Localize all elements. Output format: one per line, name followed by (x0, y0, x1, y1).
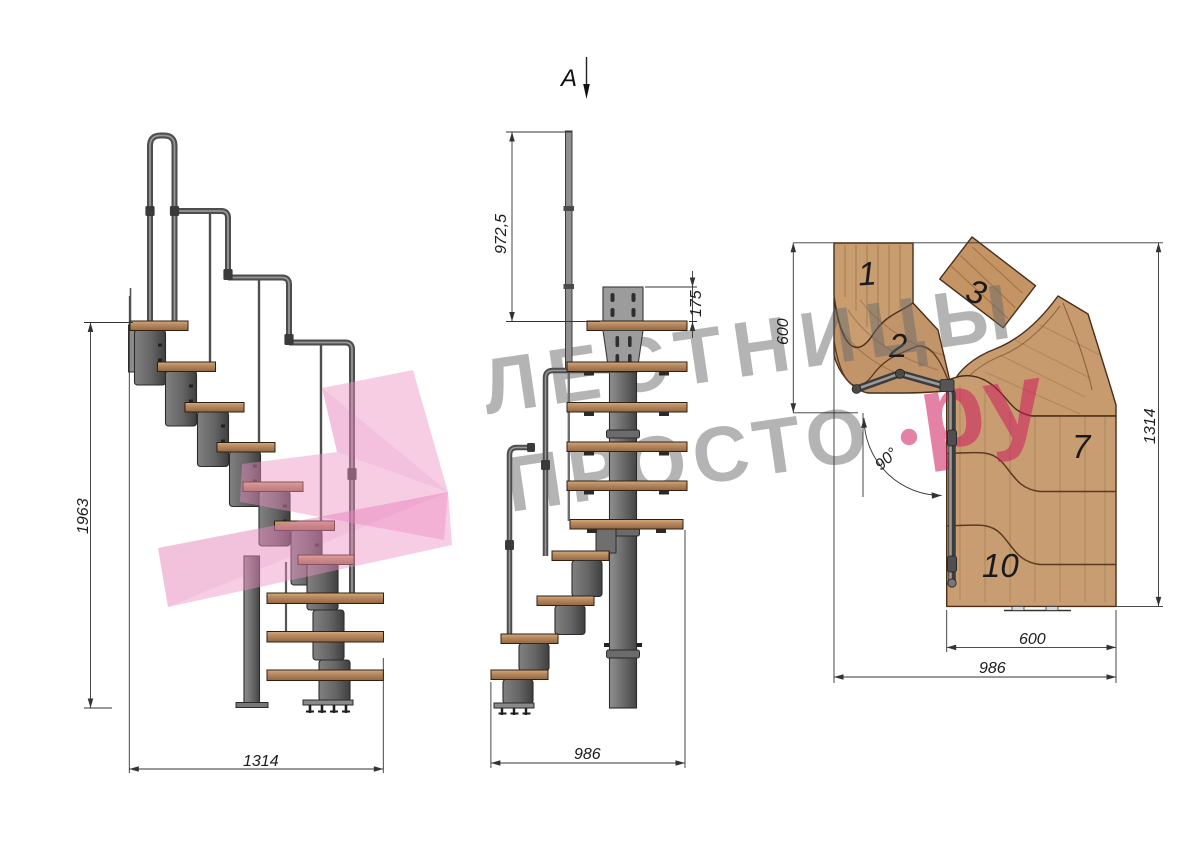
svg-text:1314: 1314 (1142, 408, 1159, 444)
svg-text:986: 986 (574, 746, 601, 763)
svg-text:600: 600 (1019, 631, 1046, 648)
svg-text:10: 10 (982, 547, 1019, 584)
svg-text:972,5: 972,5 (493, 214, 510, 254)
svg-text:7: 7 (1072, 428, 1092, 465)
svg-text:ру: ру (911, 339, 1053, 474)
svg-text:1314: 1314 (243, 753, 279, 770)
svg-text:600: 600 (775, 318, 792, 345)
svg-text:986: 986 (979, 660, 1006, 677)
svg-text:A: A (559, 65, 577, 92)
svg-text:1963: 1963 (75, 498, 92, 534)
svg-text:175: 175 (688, 290, 705, 317)
